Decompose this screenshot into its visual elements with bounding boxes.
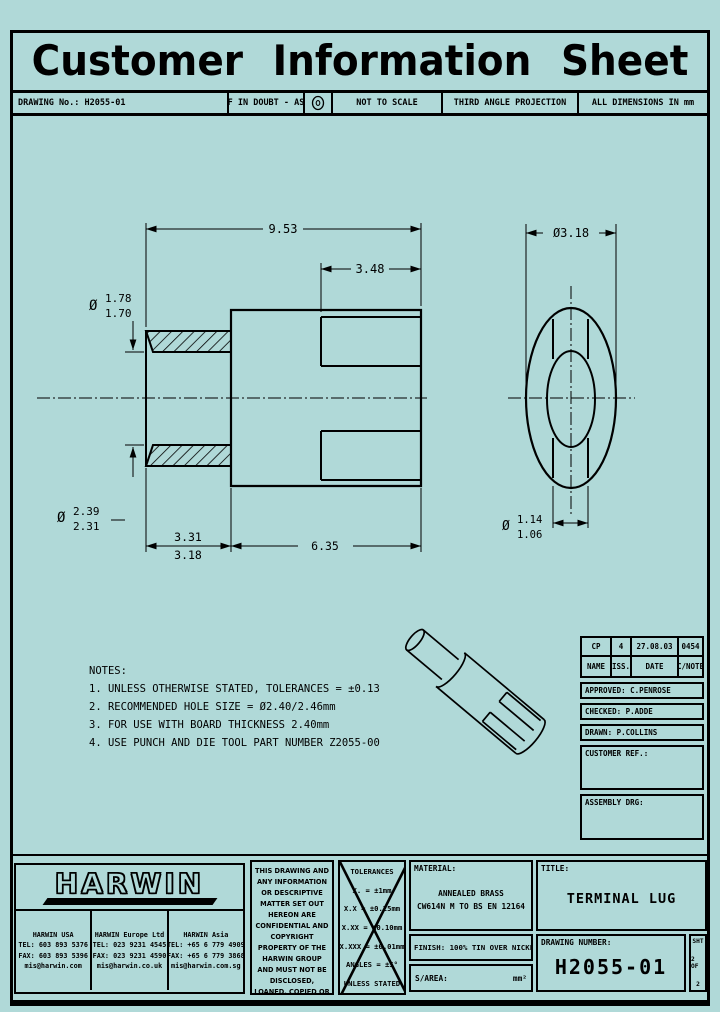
office-fax: FAX: 023 9231 4590 [93,951,167,962]
if-in-doubt-label: IF IN DOUBT - ASK [229,93,305,113]
office-email: mis@harwin.com.sg [171,961,241,972]
note-line: 1. UNLESS OTHERWISE STATED, TOLERANCES =… [89,680,380,698]
side-view [37,310,427,486]
drawing-header-row: DRAWING No.: H2055-01 IF IN DOUBT - ASK … [13,93,707,116]
dim-slot-width-min: 1.06 [517,529,542,541]
finish-box: FINISH: 100% TIN OVER NICKEL [409,934,533,961]
office-tel: TEL: 023 9231 4545 [93,940,167,951]
dim-bore-min: 1.70 [105,307,132,320]
sarea-unit: mm² [513,974,527,983]
company-logo-row: HARWIN [16,865,243,911]
office-name: HARWIN Europe Ltd [95,930,165,941]
sheet-title-bar: Customer Information Sheet [13,33,707,93]
drawing-number-box: DRAWING NUMBER: H2055-01 [536,934,686,992]
dim-outer-dia: Ø3.18 [553,226,589,240]
logo-underline [42,898,217,905]
title-box: TITLE: TERMINAL LUG [536,860,707,931]
sheet-line: 2 [696,981,700,988]
dim-barrel-len-max: 3.31 [174,530,202,544]
customer-information-sheet: Customer Information Sheet DRAWING No.: … [10,30,710,1006]
sarea-box: S/AREA: mm² [409,964,533,992]
drawing-number-header: DRAWING No.: H2055-01 [13,93,229,113]
note-line: 3. FOR USE WITH BOARD THICKNESS 2.40mm [89,716,380,734]
rev-iss-label: ISS. [612,657,632,676]
tolerances-box: TOLERANCES X. = ±1mm X.X = ±0.25mm X.XX … [338,860,406,995]
office-europe: HARWIN Europe Ltd TEL: 023 9231 4545 FAX… [92,911,168,990]
office-name: HARWIN Asia [183,930,228,941]
office-fax: FAX: +65 6 779 3868 [169,951,243,962]
revision-table: CP 4 27.08.03 0454 NAME ISS. DATE C/NOTE… [580,636,704,840]
dim-barrel-len-min: 3.18 [174,548,202,562]
office-tel: TEL: +65 6 779 4909 [169,940,243,951]
harwin-logo: HARWIN [55,870,204,898]
rev-name-label: NAME [582,657,612,676]
sarea-label: S/AREA: [415,974,448,983]
drawing-area: 9.53 3.48 Ø 1.78 1.70 Ø 2.39 2.31 3.31 3… [13,116,707,856]
side-view-dim-text: 9.53 3.48 Ø 1.78 1.70 Ø 2.39 2.31 3.31 3… [57,222,384,562]
dim-bore-max: 1.78 [105,292,132,305]
isometric-view [397,620,549,758]
page-title: Customer Information Sheet [32,37,689,86]
office-fax: FAX: 603 893 5396 [18,951,88,962]
company-block: HARWIN HARWIN USA TEL: 603 893 5376 FAX:… [14,863,245,994]
barrel-hatch-top [146,331,231,352]
sheet-line: 2 OF [691,956,705,970]
checked-box: CHECKED: P.ADDE [580,703,704,720]
dim-slot-length: 3.48 [356,262,385,276]
notes-block: NOTES: 1. UNLESS OTHERWISE STATED, TOLER… [89,662,380,752]
dim-body-length: 6.35 [311,539,339,553]
drawing-number-label: DRAWING NUMBER: [541,938,681,947]
material-line1: ANNEALED BRASS [414,887,528,900]
dim-barrel-dia-min: 2.31 [73,520,100,533]
material-line2: CW614N M TO BS EN 12164 [414,900,528,913]
approved-box: APPROVED: C.PENROSE [580,682,704,699]
note-line: 2. RECOMMENDED HOLE SIZE = Ø2.40/2.46mm [89,698,380,716]
dim-slot-width-max: 1.14 [517,514,542,526]
office-email: mis@harwin.co.uk [97,961,162,972]
not-to-scale-label: NOT TO SCALE [333,93,443,113]
assembly-drg-box: ASSEMBLY DRG: [580,794,704,840]
revision-grid: CP 4 27.08.03 0454 NAME ISS. DATE C/NOTE [580,636,704,678]
title-label: TITLE: [541,864,702,873]
barrel-hatch-bottom [146,445,231,466]
drawn-box: DRAWN: P.COLLINS [580,724,704,741]
dia-symbol-barrel: Ø [57,510,66,526]
material-box: MATERIAL: ANNEALED BRASS CW614N M TO BS … [409,860,533,931]
projection-symbol-icon [305,93,333,113]
end-view-dim-text: Ø3.18 Ø 1.14 1.06 [502,226,589,541]
office-email: mis@harwin.com [25,961,82,972]
rev-date-label: DATE [632,657,679,676]
office-tel: TEL: 603 893 5376 [18,940,88,951]
title-block-section: HARWIN HARWIN USA TEL: 603 893 5376 FAX:… [13,856,707,1003]
rev-iss-value: 4 [612,638,632,657]
dia-symbol-bore: Ø [89,298,98,314]
third-angle-projection-icon [310,95,326,111]
dim-barrel-dia-max: 2.39 [73,505,100,518]
all-dimensions-label: ALL DIMENSIONS IN mm [579,93,707,113]
part-title: TERMINAL LUG [541,891,702,907]
dim-overall-length: 9.53 [269,222,298,236]
dia-symbol-slot: Ø [502,519,510,534]
company-addresses: HARWIN USA TEL: 603 893 5376 FAX: 603 89… [16,911,243,990]
note-line: 4. USE PUNCH AND DIE TOOL PART NUMBER Z2… [89,734,380,752]
tolerances-cross-out [340,862,406,995]
office-usa: HARWIN USA TEL: 603 893 5376 FAX: 603 89… [16,911,92,990]
rev-cnote-value: 0454 [679,638,702,657]
rev-date-value: 27.08.03 [632,638,679,657]
rev-name-value: CP [582,638,612,657]
notes-title: NOTES: [89,662,380,680]
drawing-number-value: H2055-01 [541,955,681,979]
rev-cnote-label: C/NOTE [679,657,702,676]
sheet-number-box: SHT 2 OF 2 [689,934,707,992]
customer-ref-box: CUSTOMER REF.: [580,745,704,790]
third-angle-label: THIRD ANGLE PROJECTION [443,93,579,113]
confidentiality-notice: THIS DRAWING AND ANY INFORMATION OR DESC… [250,860,334,995]
material-label: MATERIAL: [414,864,528,873]
office-asia: HARWIN Asia TEL: +65 6 779 4909 FAX: +65… [169,911,243,990]
office-name: HARWIN USA [33,930,74,941]
sheet-line: SHT [692,938,703,945]
